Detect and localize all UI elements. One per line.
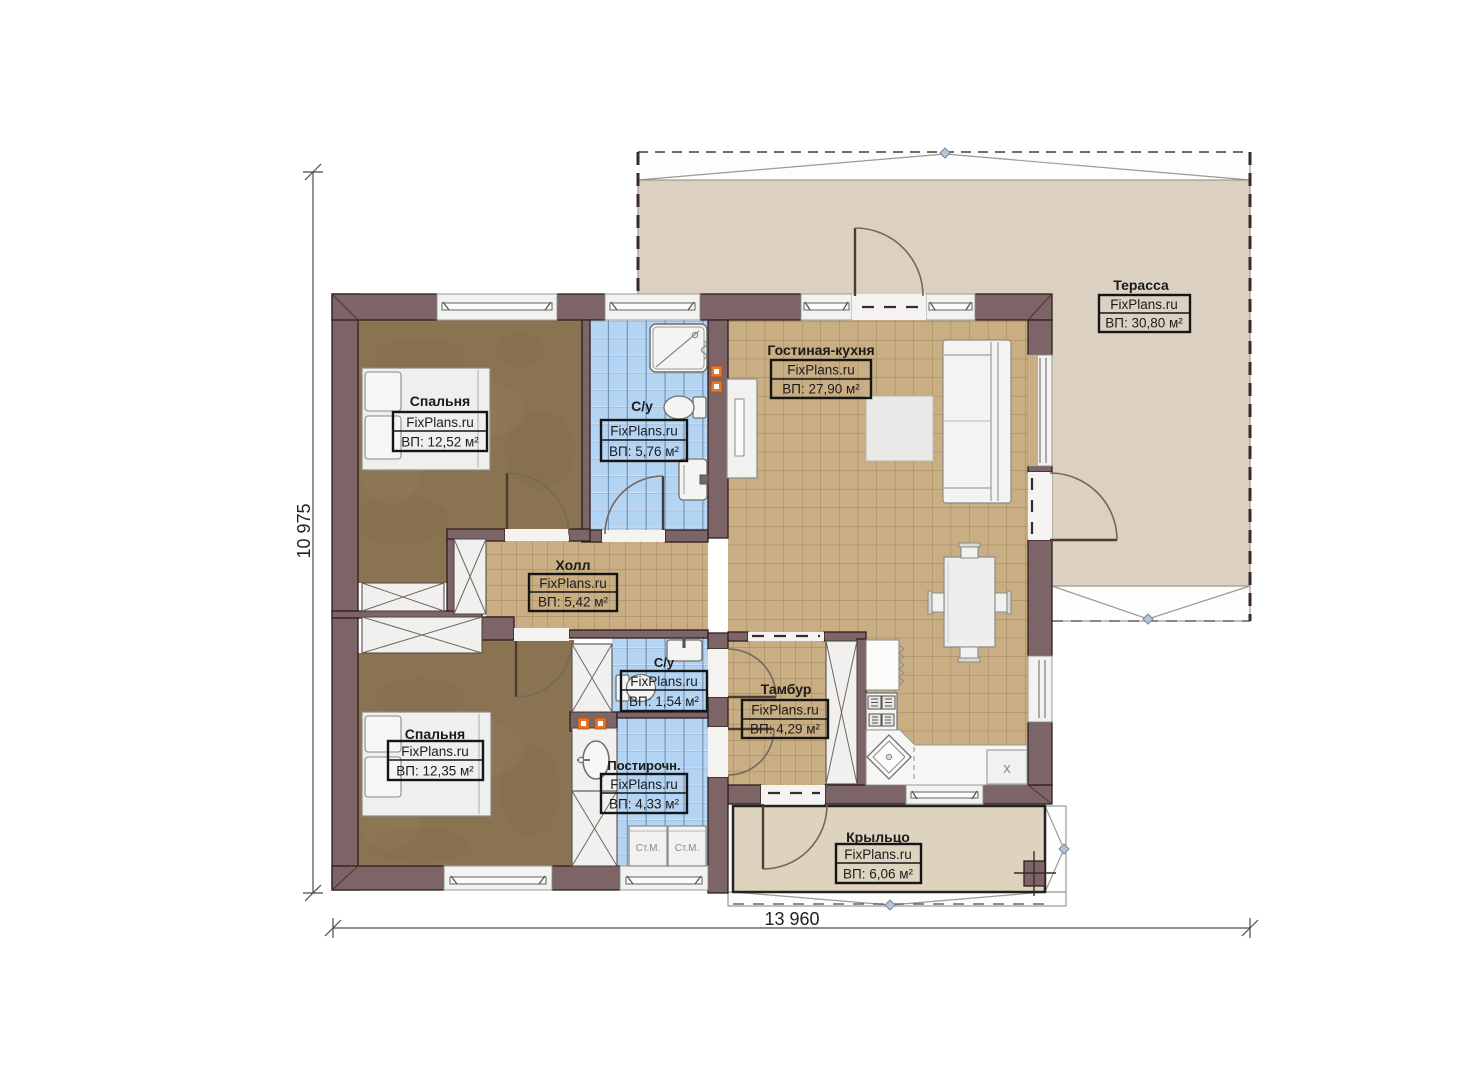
svg-text:ВП: 4,33 м²: ВП: 4,33 м² [609,797,680,812]
svg-text:Терасса: Терасса [1113,277,1169,293]
svg-text:FixPlans.ru: FixPlans.ru [1110,297,1178,312]
svg-text:Спальня: Спальня [410,393,470,409]
svg-text:ВП: 5,42 м²: ВП: 5,42 м² [538,595,609,610]
svg-text:Крыльцо: Крыльцо [846,829,910,845]
svg-text:ВП: 12,52 м²: ВП: 12,52 м² [401,435,479,450]
svg-text:Холл: Холл [555,557,590,573]
svg-text:13 960: 13 960 [764,909,819,929]
svg-text:FixPlans.ru: FixPlans.ru [751,703,819,718]
svg-text:С/у: С/у [654,655,675,670]
svg-text:10 975: 10 975 [294,503,314,558]
svg-text:Тамбур: Тамбур [761,681,812,697]
svg-text:ВП: 1,54 м²: ВП: 1,54 м² [629,694,700,709]
svg-text:FixPlans.ru: FixPlans.ru [610,424,678,439]
svg-text:FixPlans.ru: FixPlans.ru [610,777,678,792]
svg-text:FixPlans.ru: FixPlans.ru [406,415,474,430]
svg-text:FixPlans.ru: FixPlans.ru [787,363,855,378]
svg-text:Постирочн.: Постирочн. [607,758,680,773]
svg-text:ВП: 12,35 м²: ВП: 12,35 м² [396,764,474,779]
svg-text:FixPlans.ru: FixPlans.ru [630,674,698,689]
svg-text:Ст.М.: Ст.М. [675,843,700,854]
svg-text:Ст.М.: Ст.М. [636,843,661,854]
svg-text:FixPlans.ru: FixPlans.ru [844,847,912,862]
svg-text:x: x [1003,760,1011,777]
svg-text:Спальня: Спальня [405,726,465,742]
svg-text:ВП: 5,76 м²: ВП: 5,76 м² [609,444,680,459]
svg-text:ВП: 30,80 м²: ВП: 30,80 м² [1105,316,1183,331]
svg-text:Гостиная-кухня: Гостиная-кухня [767,342,874,358]
svg-text:С/у: С/у [631,398,653,414]
svg-text:ВП: 4,29 м²: ВП: 4,29 м² [750,722,821,737]
svg-text:FixPlans.ru: FixPlans.ru [539,576,607,591]
svg-text:ВП: 6,06 м²: ВП: 6,06 м² [843,867,914,882]
svg-text:ВП: 27,90 м²: ВП: 27,90 м² [782,382,860,397]
svg-text:FixPlans.ru: FixPlans.ru [401,744,469,759]
